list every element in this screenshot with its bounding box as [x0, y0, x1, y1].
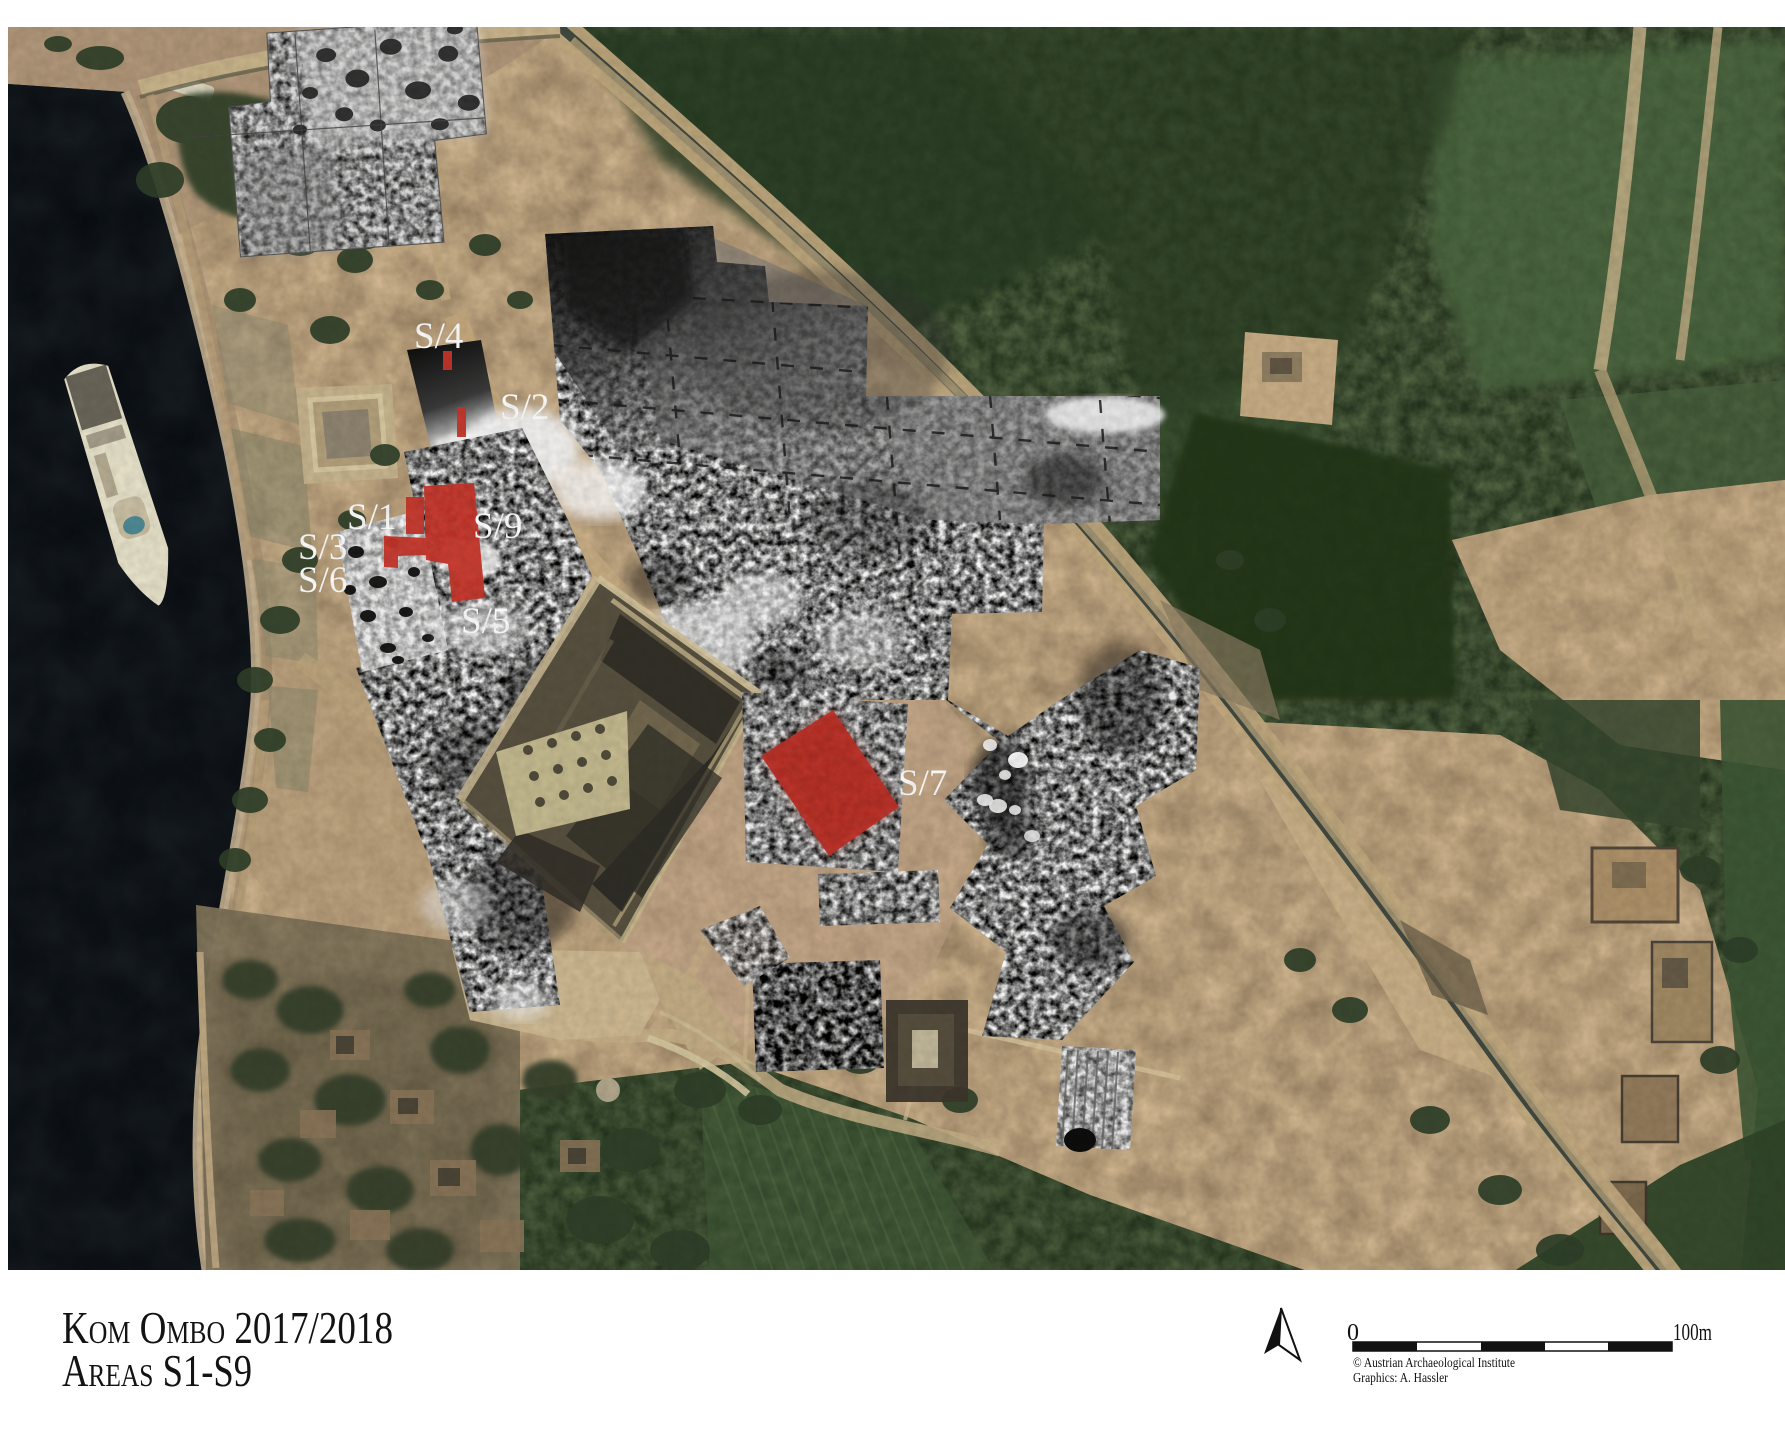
svg-text:Areas S1-S9: Areas S1-S9: [62, 1345, 252, 1396]
svg-text:0: 0: [1347, 1320, 1359, 1346]
svg-text:© Austrian Archaeological Inst: © Austrian Archaeological Institute: [1353, 1355, 1515, 1370]
svg-text:Graphics: A. Hassler: Graphics: A. Hassler: [1353, 1370, 1448, 1385]
svg-text:100m: 100m: [1673, 1320, 1712, 1346]
